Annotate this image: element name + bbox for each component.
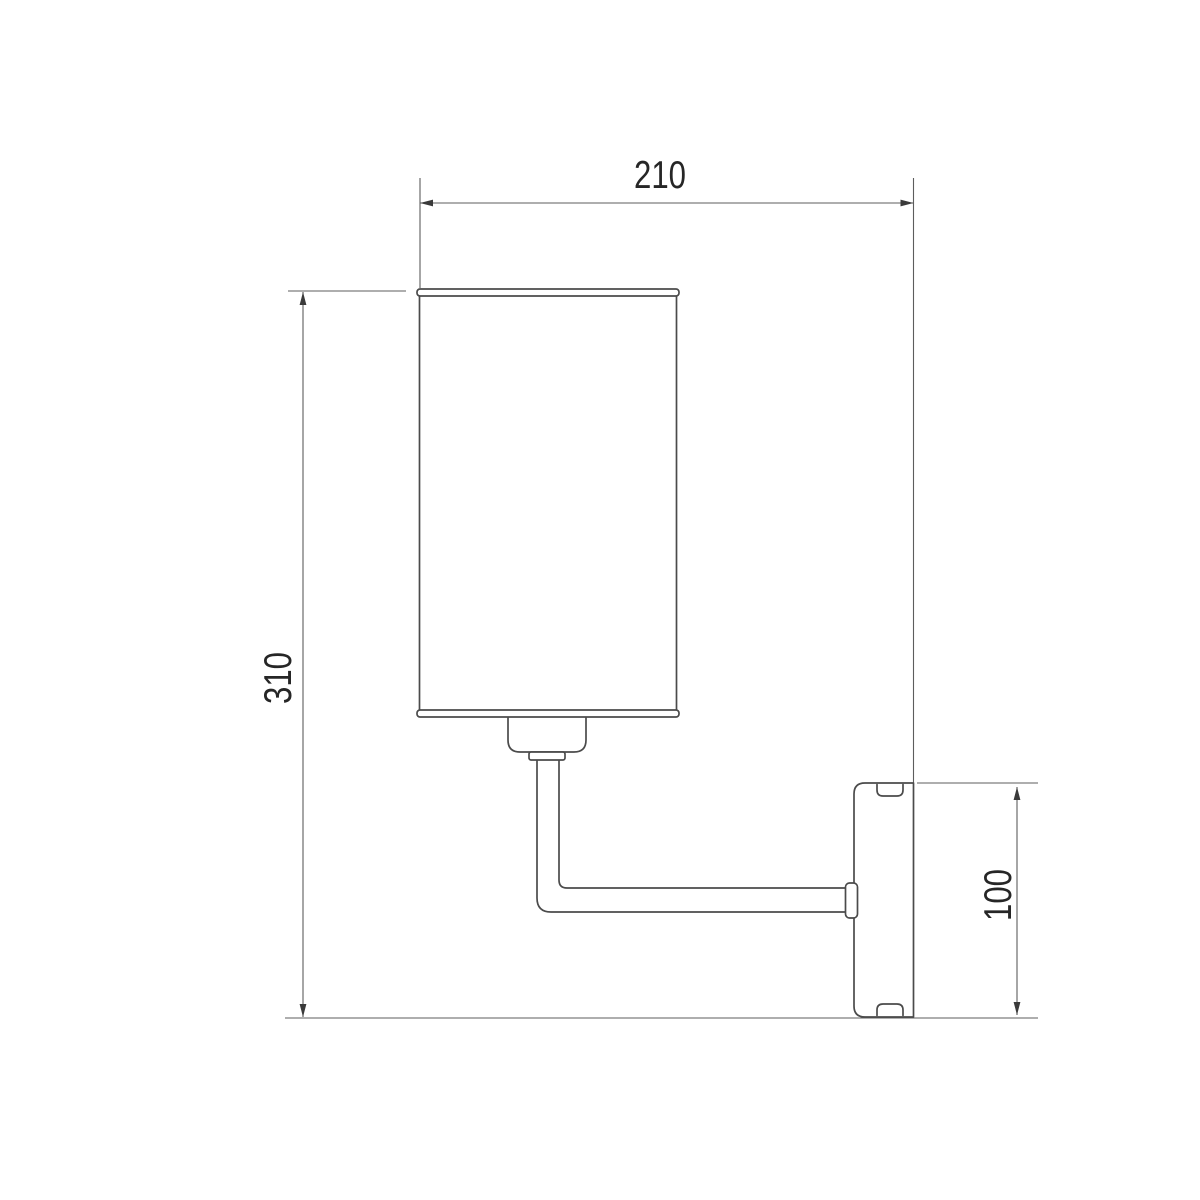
arm-wall-flange: [846, 883, 858, 918]
socket-collar: [529, 752, 565, 760]
socket-group: [508, 716, 586, 760]
arrowhead-right-icon: [901, 200, 914, 207]
arrowhead-up-icon: [300, 292, 307, 305]
arrowhead-left-icon: [420, 200, 433, 207]
technical-drawing-page: 210 310 100: [0, 0, 1200, 1200]
lampshade-bottom-rim: [417, 710, 679, 717]
wall-plate-group: [854, 783, 914, 1017]
lampshade-top-rim: [417, 289, 679, 296]
arrowhead-up-icon: [1014, 787, 1021, 800]
arm-group: [537, 758, 858, 918]
dimension-plate-height: 100: [917, 783, 1038, 1015]
dimension-label-width: 210: [634, 154, 686, 197]
technical-drawing-canvas: 210 310 100: [0, 0, 1200, 1200]
wall-plate-outline: [854, 783, 914, 1017]
lampshade-body: [420, 294, 677, 712]
arm-inner-contour: [559, 758, 847, 888]
arrowhead-down-icon: [300, 1004, 307, 1017]
socket-cup: [508, 716, 586, 752]
lampshade-group: [417, 289, 679, 717]
arrowhead-down-icon: [1014, 1002, 1021, 1015]
dimension-label-height: 310: [257, 652, 300, 704]
dimension-label-plate-height: 100: [977, 869, 1020, 921]
arm-outer-contour: [537, 758, 847, 912]
